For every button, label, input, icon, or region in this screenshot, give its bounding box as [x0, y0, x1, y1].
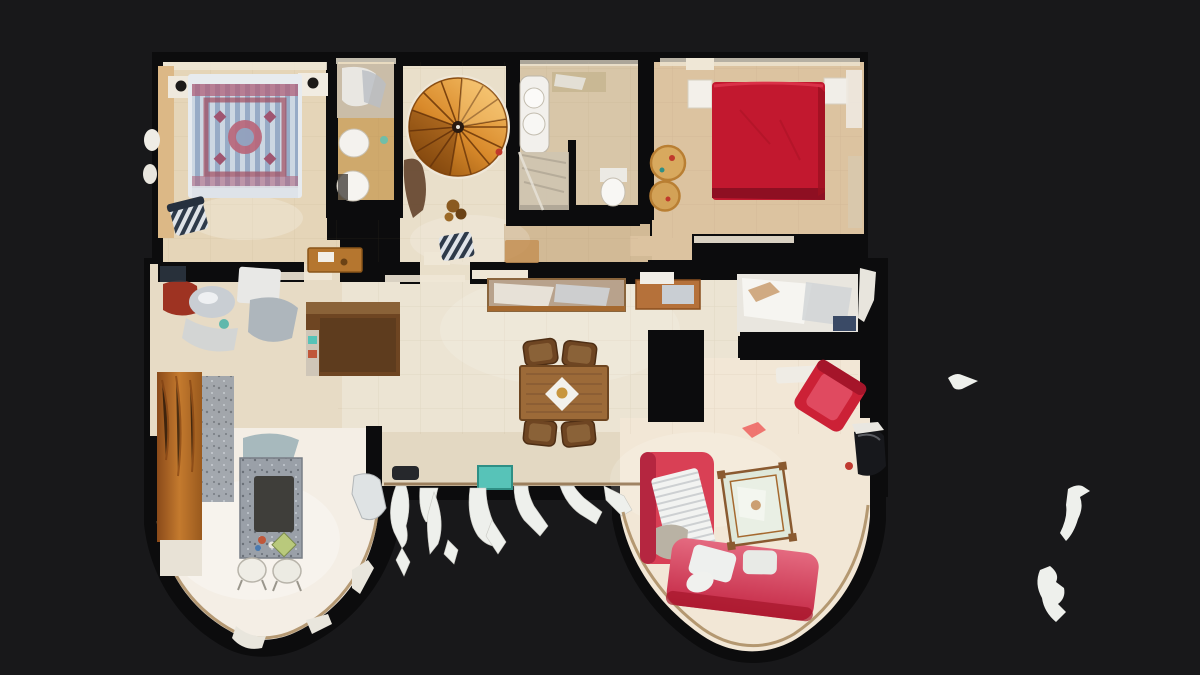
- dining-chair-3: [523, 418, 557, 446]
- floorplan-scene[interactable]: [0, 0, 1200, 675]
- teal-accent-dot: [380, 136, 388, 144]
- wall-return: [848, 156, 862, 228]
- glass-coffee-table: [717, 462, 797, 551]
- sofa-cushion-2: [743, 550, 777, 575]
- pouf-2: [651, 182, 680, 211]
- hall-desk: [308, 248, 362, 272]
- granite-table: [240, 458, 302, 558]
- bed-blue-patterned: [188, 74, 302, 198]
- white-wardrobe-mass: [737, 274, 858, 332]
- dining-chair-2: [562, 340, 598, 369]
- stair-red-detail: [496, 149, 503, 156]
- dining-set: [520, 338, 608, 448]
- kitchen-teal-dot: [219, 319, 229, 329]
- pouf-1: [651, 146, 685, 180]
- corridor-bench: [505, 240, 539, 263]
- wall-knob-1: [144, 129, 160, 151]
- wood-dresser: [306, 302, 400, 376]
- nightstand-right-2: [824, 78, 848, 104]
- nightstand-left-2: [688, 80, 712, 108]
- shower-area: [519, 152, 569, 210]
- mirror-sideboard: [488, 279, 625, 311]
- wardrobe-blue-patch: [833, 316, 856, 331]
- closet-strip: [846, 70, 862, 128]
- lamp-top-right: [308, 78, 319, 89]
- bath2-bowl-2: [523, 113, 545, 135]
- console-steel-box: [662, 285, 694, 304]
- teal-glass-table: [478, 466, 512, 489]
- bed-red: [712, 82, 825, 200]
- dining-chair-4: [561, 419, 596, 447]
- bath1-bidet: [339, 129, 369, 157]
- wall-knob-2: [143, 164, 157, 184]
- toilet-bowl: [601, 178, 625, 206]
- bath1-dark-fixture: [338, 174, 348, 200]
- lamp-top-left: [176, 81, 187, 92]
- floor-balcony-strip[interactable]: [380, 432, 650, 486]
- balcony-dark-item: [392, 466, 419, 480]
- console-white-item: [640, 272, 674, 284]
- bed-top-band: [192, 84, 298, 96]
- red-speck: [845, 462, 853, 470]
- kitchen-steel-blob: [248, 297, 298, 342]
- dining-chair-1: [522, 338, 558, 367]
- spiral-staircase[interactable]: [406, 75, 510, 179]
- bath2-bowl-1: [524, 88, 544, 108]
- dollhouse-3d-viewport[interactable]: [0, 0, 1200, 675]
- white-cabinet-end: [160, 540, 202, 576]
- kitchen-dark-item: [160, 266, 186, 282]
- bed-foot-fold: [192, 186, 298, 198]
- granite-counter-strip: [202, 376, 234, 502]
